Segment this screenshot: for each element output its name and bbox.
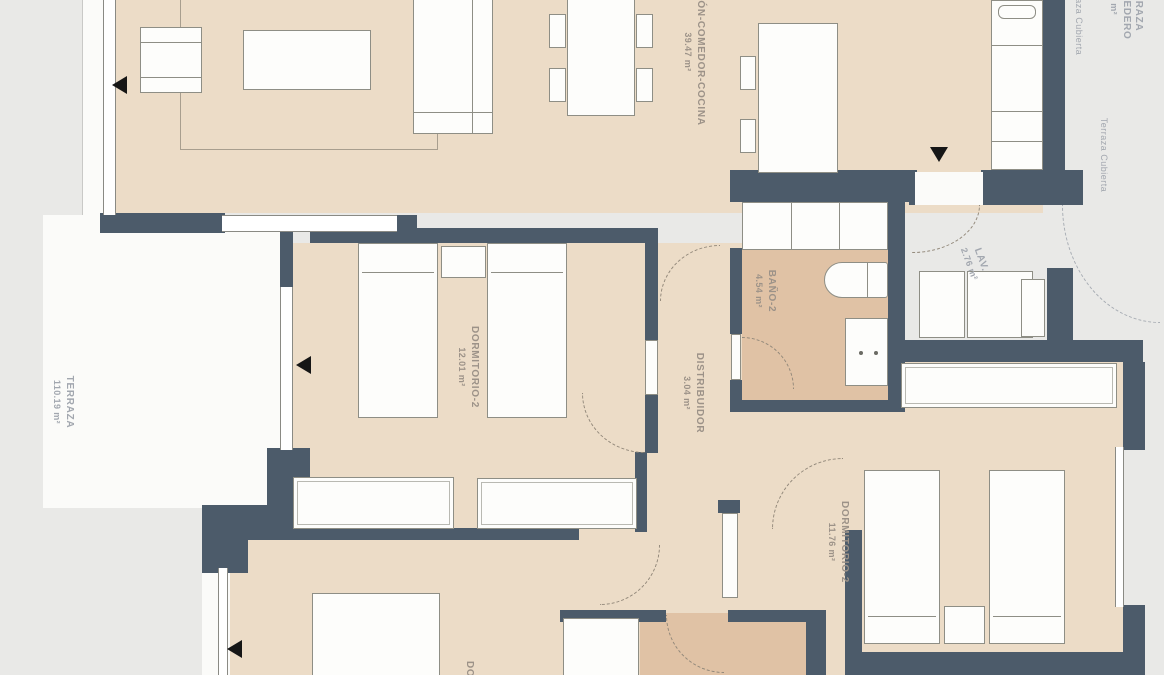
wall-segment (845, 652, 1125, 675)
room-name: TERRAZA (63, 376, 75, 429)
wardrobe (901, 363, 1117, 408)
wall-segment (100, 213, 225, 233)
room-area: 4.54 m² (753, 274, 765, 308)
room-area: 12.01 m² (456, 347, 468, 386)
door-leaf (731, 334, 741, 380)
room-name: TERRAZA (1132, 0, 1144, 31)
wall-segment (1047, 268, 1073, 340)
nightstand (944, 606, 985, 644)
bathroom1-floor (640, 613, 808, 675)
kitchen-counter (991, 0, 1043, 170)
door-opening (915, 172, 983, 205)
dining-table (567, 0, 635, 116)
sink-vanity-icon (845, 318, 888, 386)
room-label-terraza: TERRAZA 110.19 m² (51, 376, 75, 429)
room-name: DISTRIBUIDOR (693, 353, 705, 434)
window (280, 287, 293, 450)
door-swing-arc (1062, 205, 1160, 323)
coffee-table (243, 30, 371, 90)
window (1115, 447, 1124, 607)
room-name: Terraza Cubierta (1098, 118, 1110, 193)
bed (487, 243, 567, 418)
room-name: BAÑO-2 (765, 270, 777, 313)
room-label-distribuidor: DISTRIBUIDOR 3.04 m² (681, 353, 705, 434)
direction-marker-icon (296, 356, 311, 374)
room-label-dormitorio2b: DORMITORIO-2 11.76 m² (826, 501, 850, 583)
room-name: TENDEDERO (1120, 0, 1132, 40)
wall-segment (862, 340, 1143, 362)
wall-segment (728, 610, 808, 622)
wardrobe (477, 478, 637, 529)
room-area: 39.47 m² (682, 32, 694, 71)
wall-segment (1043, 0, 1065, 205)
room-area: 0 m² (1108, 0, 1120, 15)
chair (549, 68, 566, 102)
wall-segment (247, 528, 579, 540)
bed (989, 470, 1065, 644)
wall-segment (645, 228, 658, 340)
terrace-floor (82, 0, 104, 215)
door-leaf (645, 340, 658, 395)
bed (312, 593, 440, 675)
room-name: DORMITORIO-2 (838, 501, 850, 583)
bed (358, 243, 438, 418)
stool (740, 119, 756, 153)
room-area: 110.19 m² (51, 380, 63, 424)
closet (742, 202, 888, 250)
chair (636, 68, 653, 102)
room-name: SALÓN-COMEDOR-COCINA (694, 0, 706, 126)
shower (563, 618, 639, 675)
room-name: DORMITORIO-1 (463, 661, 475, 675)
sink-icon (998, 5, 1036, 19)
room-name: Terraza Cubierta (1073, 0, 1085, 55)
label-terraza-cubierta: Terraza Cubierta (1073, 0, 1085, 55)
room-area: 11.76 m² (826, 523, 838, 562)
direction-marker-icon (112, 76, 127, 94)
chair (549, 14, 566, 48)
terrace-floor (202, 568, 218, 675)
kitchen-island (758, 23, 838, 173)
room-label-salon-comedor-cocina: SALÓN-COMEDOR-COCINA 39.47 m² (682, 0, 706, 126)
outside-ground (0, 508, 202, 675)
wall-segment (985, 170, 1083, 205)
room-label-bano2: BAÑO-2 4.54 m² (753, 270, 777, 313)
room-label-dormitorio1: DORMITORIO-1 15.2 m² (451, 661, 475, 675)
direction-marker-icon (227, 640, 242, 658)
wall-segment (806, 610, 826, 675)
wall-segment (1123, 605, 1145, 675)
room-label-terraza-tendedero: TERRAZA TENDEDERO 0 m² (1108, 0, 1144, 40)
room-name: DORMITORIO-2 (468, 326, 480, 408)
wall-segment (730, 400, 890, 412)
door-leaf (722, 513, 738, 598)
toilet-icon (824, 262, 888, 298)
appliance (919, 271, 965, 338)
wall-segment (202, 533, 248, 573)
bed (864, 470, 940, 644)
label-terraza-cubierta: Terraza Cubierta (1098, 118, 1110, 193)
chair (636, 14, 653, 48)
wardrobe (293, 477, 454, 529)
wall-segment (645, 395, 658, 453)
room-area: 3.04 m² (681, 376, 693, 410)
room-label-dormitorio2: DORMITORIO-2 12.01 m² (456, 326, 480, 408)
wall-segment (730, 248, 742, 334)
wall-segment (718, 500, 740, 513)
floor-plan: TERRAZA 110.19 m² SALÓN-COMEDOR-COCINA 3… (0, 0, 1164, 675)
wall-segment (280, 230, 293, 290)
sofa (413, 0, 493, 134)
window (103, 0, 116, 215)
armchair (140, 27, 202, 93)
wall-segment (1123, 362, 1145, 450)
window (218, 568, 228, 675)
nightstand (441, 246, 486, 278)
direction-marker-icon (930, 147, 948, 162)
appliance (1021, 279, 1045, 337)
window (222, 215, 397, 232)
stool (740, 56, 756, 90)
